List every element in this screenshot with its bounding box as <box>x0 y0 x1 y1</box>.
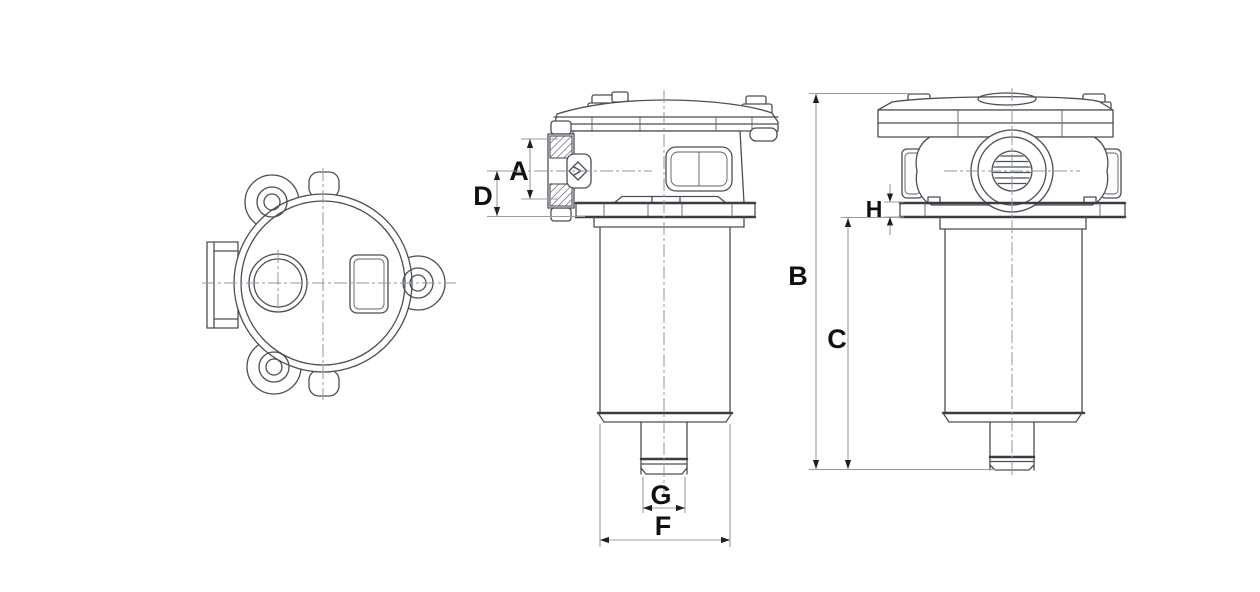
drawing-canvas: A D G F <box>0 0 1260 592</box>
dimension-label-b: B <box>788 261 808 291</box>
dimension-label-h: H <box>866 196 883 222</box>
dimension-g: G <box>643 477 685 513</box>
side-view: A D G F <box>473 90 778 547</box>
filter-bowl <box>598 227 732 422</box>
side-bracket <box>207 242 238 328</box>
dimension-c: C <box>827 218 901 470</box>
dimension-label-d: D <box>473 181 493 211</box>
dimension-h: H <box>866 184 904 235</box>
bottom-tab <box>309 370 339 396</box>
technical-drawing: A D G F <box>0 0 1260 592</box>
filter-bowl <box>943 229 1084 422</box>
dimension-label-c: C <box>827 324 847 354</box>
dimension-label-g: G <box>650 480 671 510</box>
top-view <box>202 168 456 400</box>
front-view: B C H <box>788 88 1125 478</box>
dimension-label-f: F <box>655 511 672 541</box>
